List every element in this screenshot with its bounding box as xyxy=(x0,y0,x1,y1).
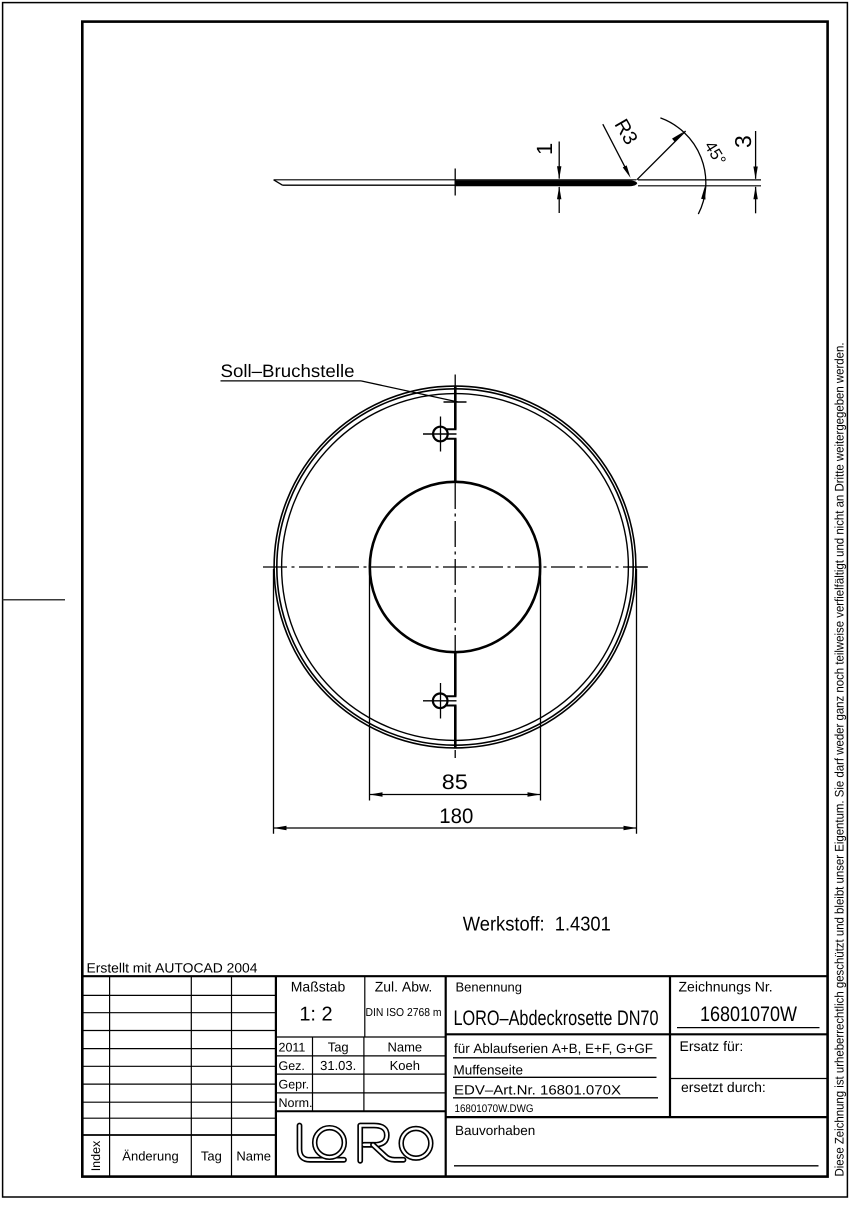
svg-text:ersetzt durch:: ersetzt durch: xyxy=(681,1079,766,1095)
svg-text:2011: 2011 xyxy=(279,1041,306,1055)
svg-text:1: 1 xyxy=(532,143,557,155)
svg-text:Gepr.: Gepr. xyxy=(279,1078,310,1092)
svg-text:180: 180 xyxy=(439,805,473,828)
svg-text:Tag: Tag xyxy=(201,1149,222,1164)
svg-text:Koeh: Koeh xyxy=(390,1058,420,1073)
svg-text:31.03.: 31.03. xyxy=(320,1058,356,1073)
svg-text:Soll–Bruchstelle: Soll–Bruchstelle xyxy=(221,361,355,381)
svg-text:Name: Name xyxy=(387,1040,422,1055)
svg-text:Muffenseite: Muffenseite xyxy=(454,1063,524,1078)
svg-text:Zeichnungs Nr.: Zeichnungs Nr. xyxy=(679,979,773,995)
svg-text:Diese Zeichnung ist urheberrec: Diese Zeichnung ist urheberrechtlich ges… xyxy=(833,343,847,1177)
svg-text:Index: Index xyxy=(89,1140,103,1171)
svg-text:Benennung: Benennung xyxy=(456,980,523,995)
svg-text:Bauvorhaben: Bauvorhaben xyxy=(455,1123,535,1138)
svg-text:EDV–Art.Nr. 16801.070X: EDV–Art.Nr. 16801.070X xyxy=(454,1083,621,1098)
svg-text:3: 3 xyxy=(730,135,756,148)
svg-text:DIN ISO 2768 m: DIN ISO 2768 m xyxy=(366,1007,442,1019)
svg-text:für Ablaufserien A+B, E+F, G+G: für Ablaufserien A+B, E+F, G+GF xyxy=(454,1041,653,1056)
svg-text:Änderung: Änderung xyxy=(122,1149,178,1164)
svg-text:16801070W: 16801070W xyxy=(700,1003,797,1026)
svg-text:Gez.: Gez. xyxy=(279,1059,305,1073)
svg-text:Zul. Abw.: Zul. Abw. xyxy=(375,979,433,995)
svg-text:Werkstoff: 1.4301: Werkstoff: 1.4301 xyxy=(463,914,611,936)
svg-text:85: 85 xyxy=(442,771,468,794)
svg-text:Tag: Tag xyxy=(328,1040,349,1055)
svg-text:Norm.: Norm. xyxy=(279,1096,313,1110)
svg-text:LORO–Abdeckrosette DN70: LORO–Abdeckrosette DN70 xyxy=(454,1007,659,1030)
svg-text:Erstellt mit AUTOCAD 2004: Erstellt mit AUTOCAD 2004 xyxy=(87,961,258,976)
svg-text:1: 2: 1: 2 xyxy=(299,1004,332,1026)
svg-text:Name: Name xyxy=(236,1149,271,1164)
svg-text:Ersatz für:: Ersatz für: xyxy=(680,1038,744,1054)
svg-text:Maßstab: Maßstab xyxy=(291,979,346,995)
svg-text:16801070W.DWG: 16801070W.DWG xyxy=(455,1103,534,1115)
